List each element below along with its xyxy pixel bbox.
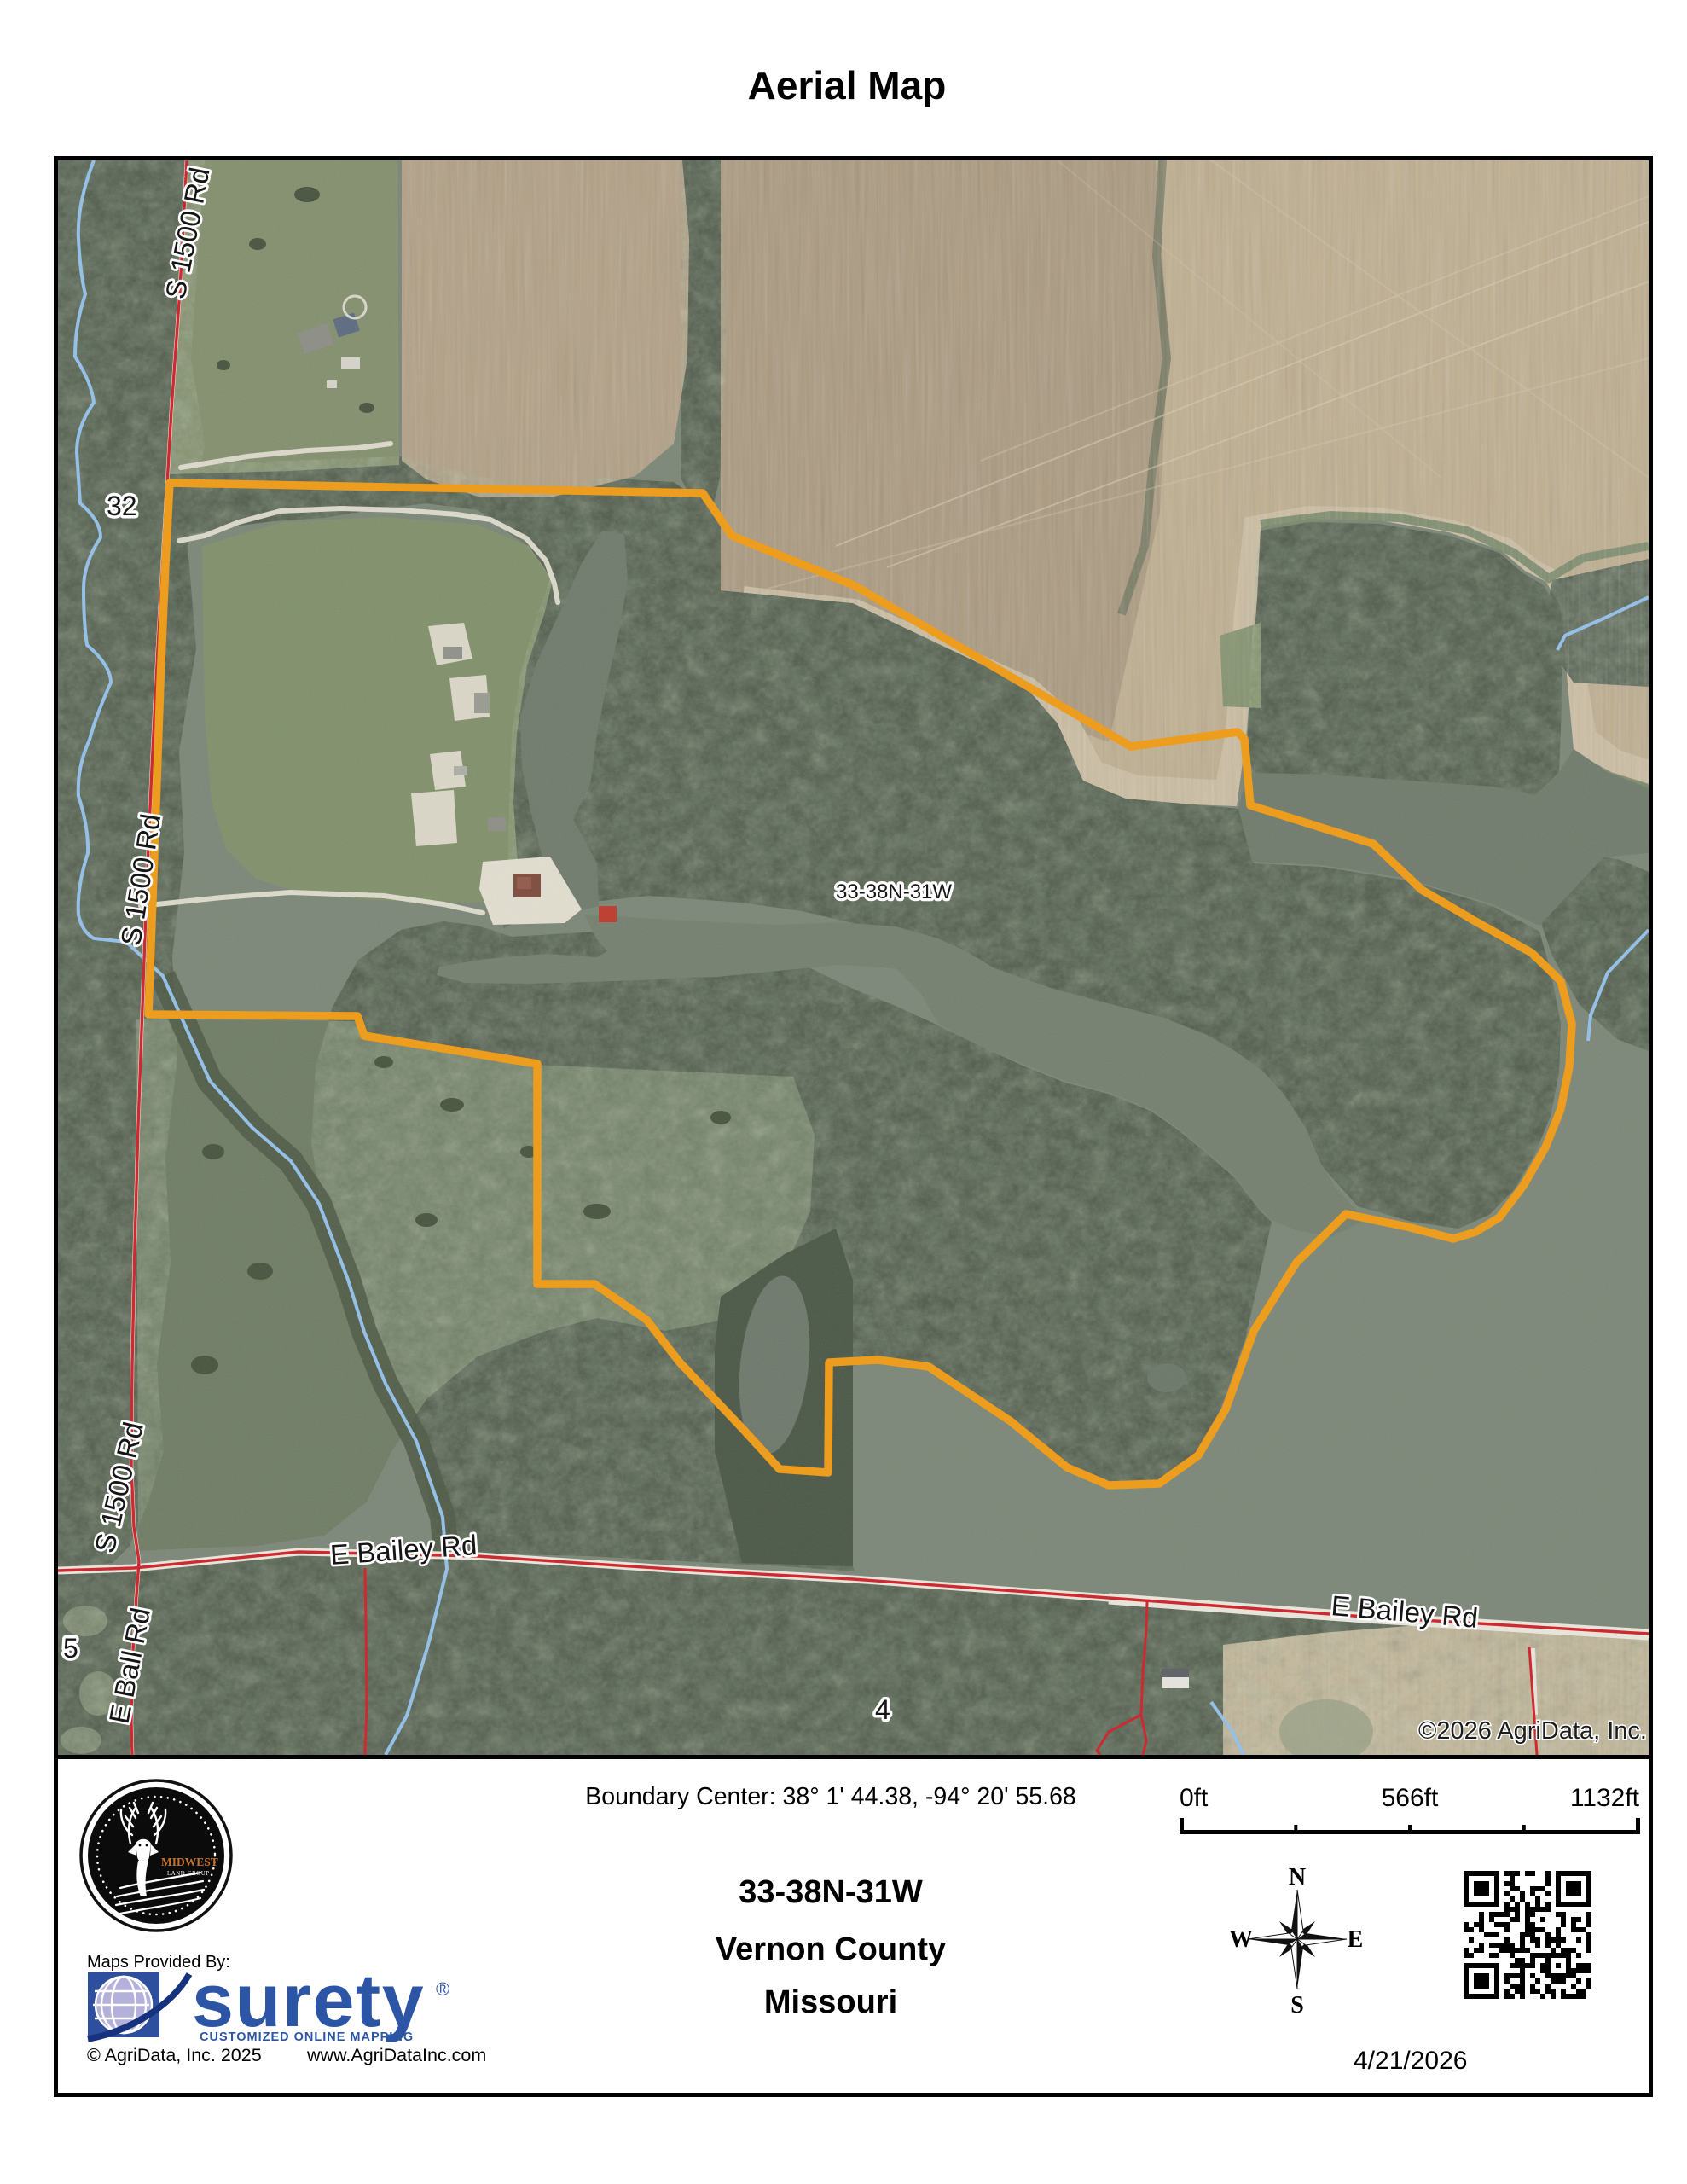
svg-text:4: 4 [875,1694,890,1725]
svg-text:E: E [1348,1926,1364,1953]
svg-text:Missouri: Missouri [764,1984,897,2020]
svg-text:©2026 AgriData, Inc.: ©2026 AgriData, Inc. [1418,1717,1647,1745]
svg-text:N: N [1289,1864,1306,1891]
svg-text:0ft: 0ft [1180,1784,1209,1812]
svg-text:1132ft: 1132ft [1570,1784,1640,1812]
svg-text:© AgriData, Inc. 2025: © AgriData, Inc. 2025 [87,2045,262,2065]
svg-text:Aerial Map: Aerial Map [748,63,947,107]
svg-text:5: 5 [63,1633,78,1664]
svg-text:33-38N-31W: 33-38N-31W [739,1874,923,1910]
svg-text:33-38N-31W: 33-38N-31W [836,880,952,903]
svg-text:®: ® [436,1978,449,2000]
svg-text:32: 32 [107,491,137,521]
svg-text:LAND GROUP: LAND GROUP [167,1871,210,1877]
svg-text:566ft: 566ft [1382,1784,1439,1812]
svg-text:S: S [1290,1992,1304,2018]
svg-text:CUSTOMIZED ONLINE MAPPING: CUSTOMIZED ONLINE MAPPING [200,2030,414,2044]
svg-text:www.AgriDataInc.com: www.AgriDataInc.com [306,2045,486,2065]
svg-text:Boundary Center: 38° 1' 44.38,: Boundary Center: 38° 1' 44.38, -94° 20' … [585,1783,1076,1810]
svg-text:4/21/2026: 4/21/2026 [1354,2047,1467,2075]
svg-text:Vernon County: Vernon County [716,1931,946,1967]
svg-text:MIDWEST: MIDWEST [161,1856,218,1868]
